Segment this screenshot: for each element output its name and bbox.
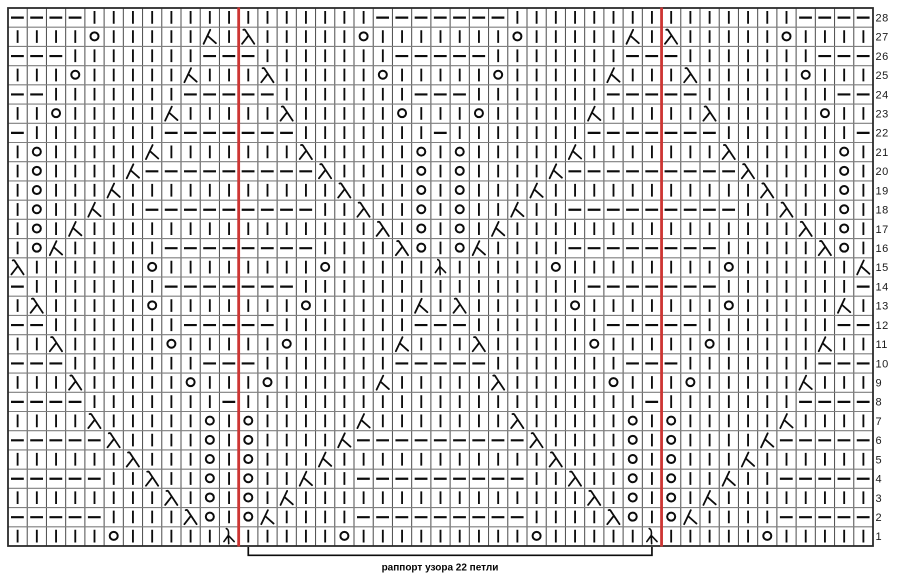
svg-text:16: 16 [876,243,889,255]
svg-text:13: 13 [876,301,889,313]
svg-text:21: 21 [876,147,889,159]
svg-text:5: 5 [876,454,883,466]
svg-text:9: 9 [876,377,883,389]
svg-text:1: 1 [876,531,883,543]
svg-text:26: 26 [876,51,889,63]
svg-text:17: 17 [876,224,889,236]
svg-text:раппорт узора 22 петли: раппорт узора 22 петли [382,563,499,574]
svg-text:22: 22 [876,128,889,140]
svg-text:14: 14 [876,281,889,293]
svg-text:15: 15 [876,262,889,274]
svg-text:27: 27 [876,32,889,44]
svg-text:4: 4 [876,474,883,486]
svg-text:20: 20 [876,166,889,178]
svg-text:7: 7 [876,416,883,428]
svg-text:25: 25 [876,70,889,82]
svg-text:28: 28 [876,12,889,24]
svg-text:18: 18 [876,205,889,217]
svg-text:12: 12 [876,320,889,332]
svg-text:23: 23 [876,108,889,120]
svg-text:10: 10 [876,358,889,370]
svg-text:8: 8 [876,397,883,409]
svg-text:2: 2 [876,512,883,524]
svg-text:6: 6 [876,435,883,447]
svg-text:19: 19 [876,185,889,197]
svg-text:24: 24 [876,89,889,101]
svg-text:3: 3 [876,493,883,505]
svg-text:11: 11 [876,339,888,351]
